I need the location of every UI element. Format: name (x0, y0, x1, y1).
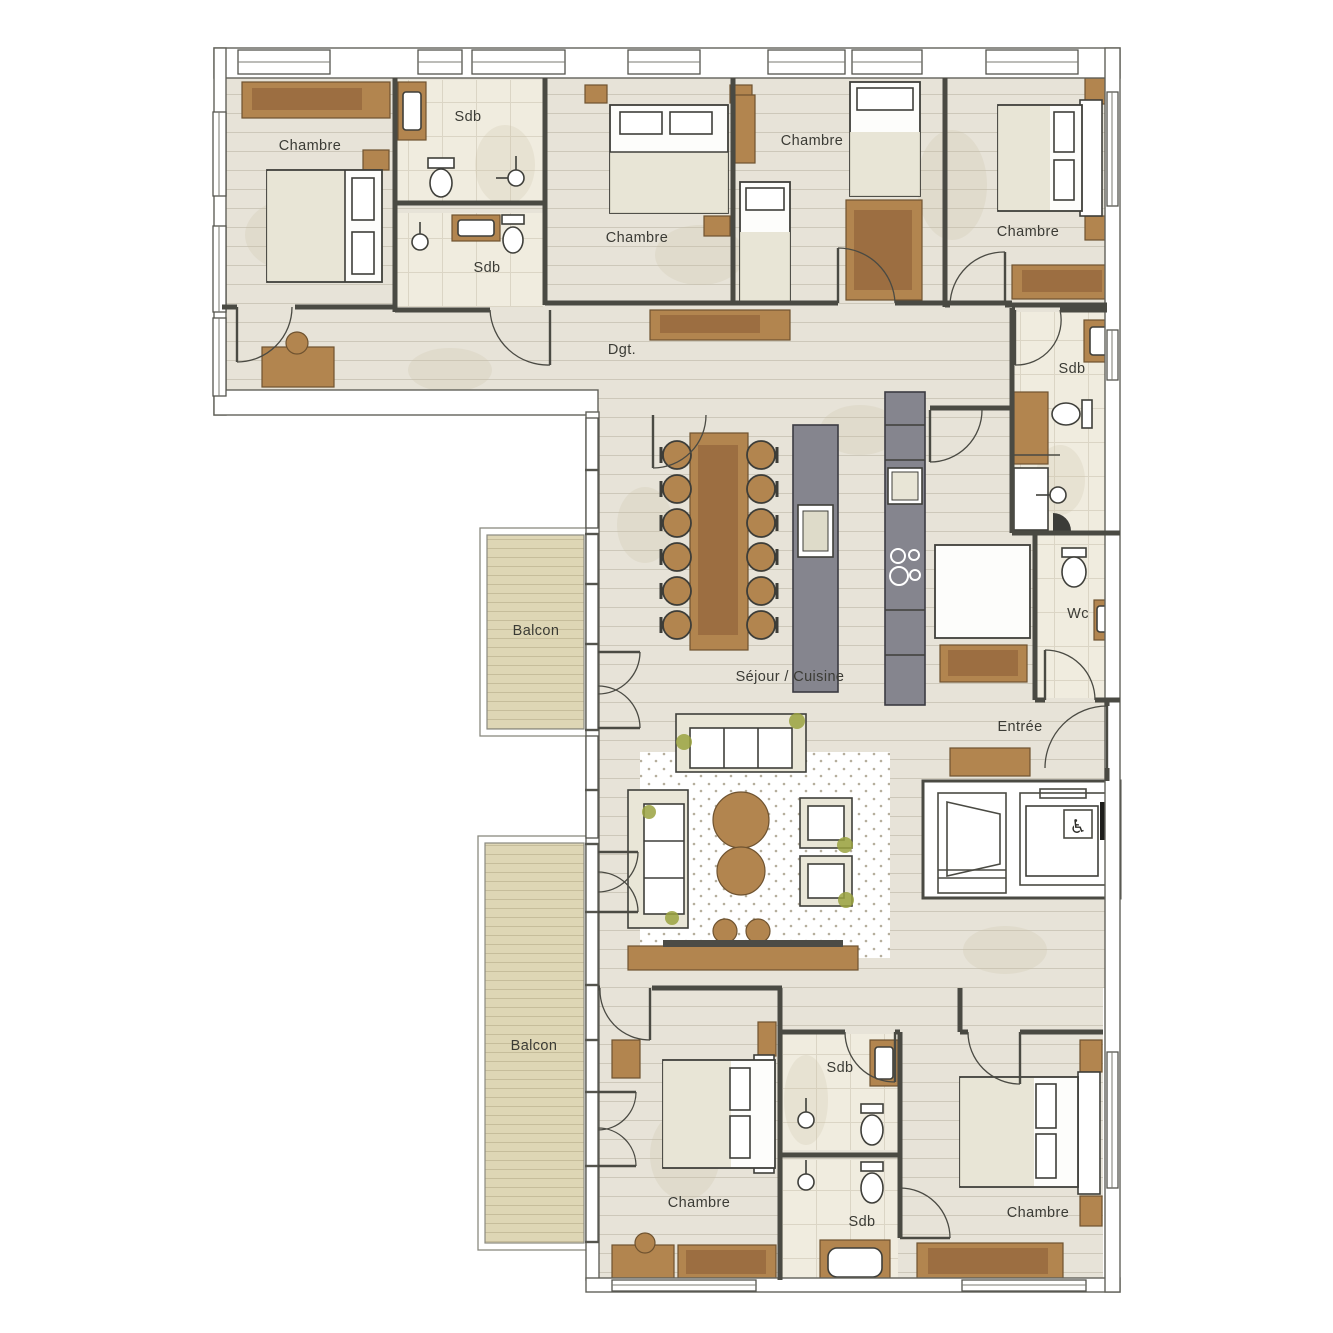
room-label-balcon-nord: Balcon (513, 623, 560, 639)
toilet (503, 227, 523, 253)
wardrobe (735, 95, 755, 163)
elevator-door-rail (1100, 802, 1105, 840)
pouf (713, 919, 737, 943)
headboard (1078, 1072, 1100, 1194)
bed-double (267, 170, 382, 282)
room-label-wc: Wc (1067, 606, 1089, 622)
room-label-entree: Entrée (997, 719, 1042, 735)
toilet-tank (1082, 400, 1092, 428)
bed-double (663, 1055, 775, 1173)
bed-single (740, 182, 790, 302)
toilet (1052, 403, 1080, 425)
kitchen-island (793, 425, 838, 692)
windows-west (213, 112, 226, 396)
coffee-table (717, 847, 765, 895)
toilet (430, 169, 452, 197)
toilet-tank (861, 1162, 883, 1171)
room-label-sdb-s1: Sdb (827, 1060, 854, 1076)
room-label-chambre-ne: Chambre (997, 224, 1059, 240)
bed-double (998, 100, 1102, 216)
floor-plan-drawing: ♿ (0, 0, 1333, 1333)
room-label-sejour-cuisine: Séjour / Cuisine (736, 669, 845, 685)
bed-double (960, 1072, 1100, 1194)
room-label-chambre-n2: Chambre (781, 133, 843, 149)
nightstand (612, 1040, 640, 1078)
toilet-tank (861, 1104, 883, 1113)
toilet (861, 1173, 883, 1203)
storage-white (1014, 468, 1048, 530)
desk-chair (286, 332, 308, 354)
room-label-balcon-sud: Balcon (511, 1038, 558, 1054)
shower-head (508, 170, 524, 186)
tv (663, 940, 843, 947)
sink (458, 220, 494, 236)
floor-plan-page: ♿ (0, 0, 1333, 1333)
nightstand (1080, 1196, 1102, 1226)
pantry-cabinet (935, 545, 1030, 638)
tv-console (628, 946, 858, 970)
room-label-sdb-ne: Sdb (1059, 361, 1086, 377)
room-label-chambre-sw: Chambre (668, 1195, 730, 1211)
room-label-sdb-nw-1: Sdb (455, 109, 482, 125)
toilet-tank (1062, 548, 1086, 557)
nightstand (1085, 216, 1107, 240)
bedroom-ne-furniture (998, 78, 1114, 299)
sink (875, 1047, 893, 1079)
wall-south-north-wing (214, 390, 598, 415)
glazing-west (585, 418, 599, 1242)
entry-console (950, 748, 1030, 776)
nightstand (363, 150, 389, 170)
toilet (1062, 557, 1086, 587)
shower-head (412, 234, 428, 250)
room-label-chambre-nw: Chambre (279, 138, 341, 154)
headboard (1080, 100, 1102, 216)
elevator-block: ♿ (923, 781, 1120, 898)
room-label-sdb-s2: Sdb (849, 1214, 876, 1230)
nightstand (585, 85, 607, 103)
kitchen-counter (885, 392, 925, 705)
storage (1014, 392, 1048, 464)
room-label-chambre-n1: Chambre (606, 230, 668, 246)
shower-head (798, 1174, 814, 1190)
bench (704, 216, 730, 236)
toilet (861, 1115, 883, 1145)
toilet-tank (502, 215, 524, 224)
shower-head (1050, 487, 1066, 503)
pouf (746, 919, 770, 943)
bed-single (850, 82, 920, 196)
wheelchair-icon: ♿ (1069, 816, 1086, 838)
bed-double (610, 105, 728, 213)
toilet-tank (428, 158, 454, 168)
room-label-chambre-se: Chambre (1007, 1205, 1069, 1221)
room-label-degagement: Dgt. (608, 342, 636, 358)
room-label-sdb-nw-2: Sdb (474, 260, 501, 276)
nightstand (758, 1022, 776, 1056)
shower-head (798, 1112, 814, 1128)
nightstand (1080, 1040, 1102, 1072)
coffee-table (713, 792, 769, 848)
sink (403, 92, 421, 130)
stool (635, 1233, 655, 1253)
sofa-top (676, 714, 806, 772)
